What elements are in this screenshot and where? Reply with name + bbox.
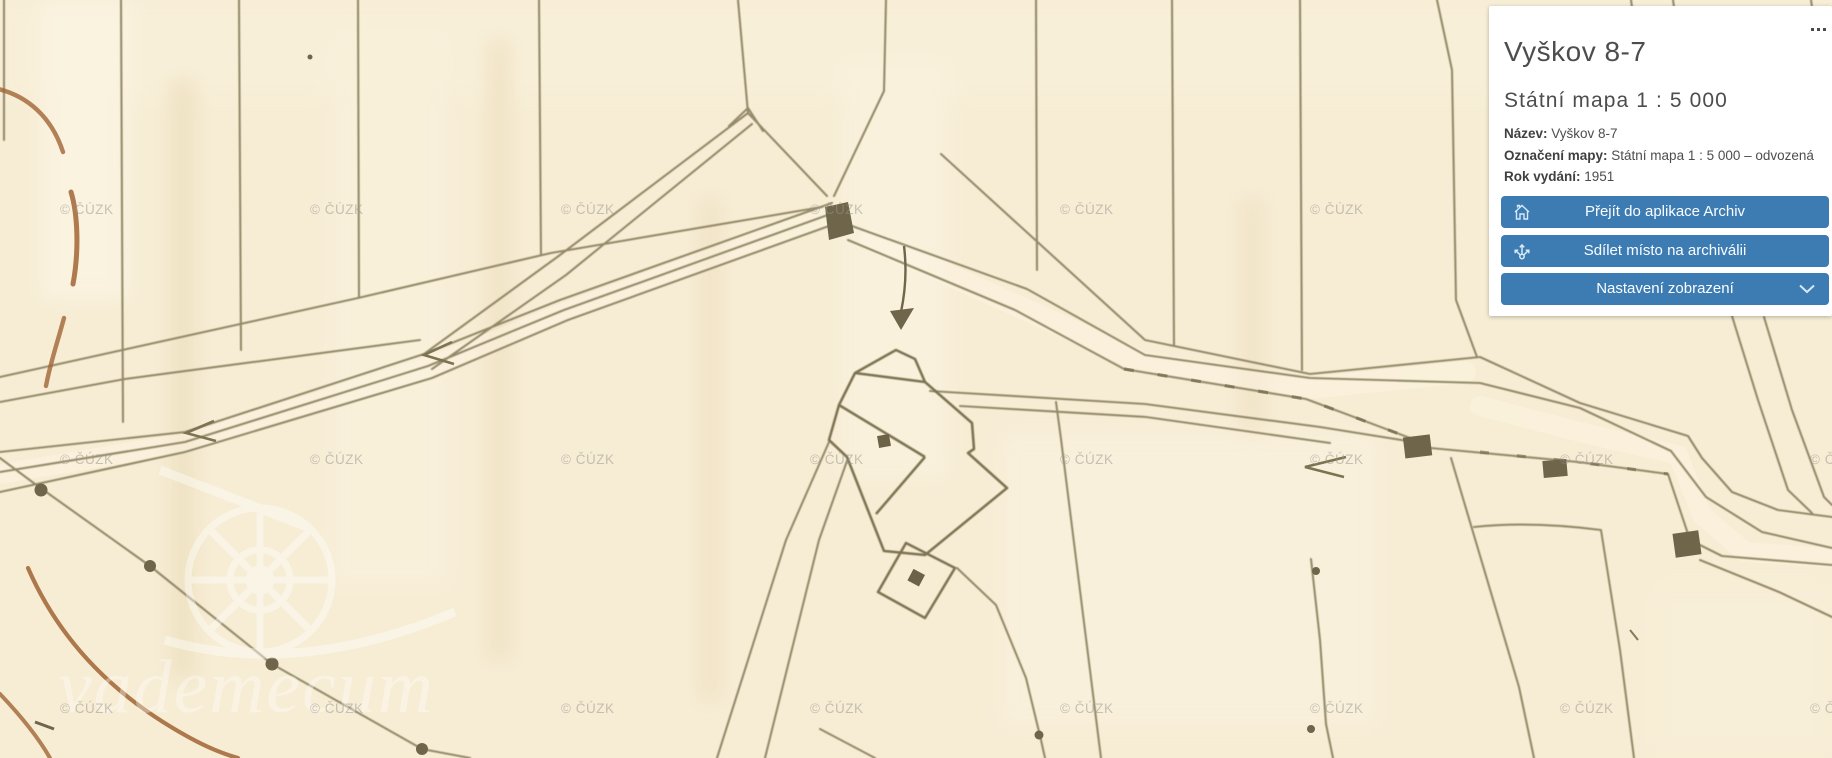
svg-text:© ČÚZK: © ČÚZK [1310, 202, 1363, 217]
svg-text:© ČÚZK: © ČÚZK [561, 701, 614, 716]
svg-text:© ČÚZK: © ČÚZK [1810, 701, 1832, 716]
svg-text:© ČÚZK: © ČÚZK [310, 701, 363, 716]
svg-text:© ČÚZK: © ČÚZK [1810, 452, 1832, 467]
svg-text:© ČÚZK: © ČÚZK [60, 202, 113, 217]
svg-text:© ČÚZK: © ČÚZK [60, 701, 113, 716]
svg-text:© ČÚZK: © ČÚZK [1060, 701, 1113, 716]
svg-text:© ČÚZK: © ČÚZK [310, 202, 363, 217]
svg-text:© ČÚZK: © ČÚZK [60, 452, 113, 467]
svg-text:© ČÚZK: © ČÚZK [810, 202, 863, 217]
svg-text:© ČÚZK: © ČÚZK [561, 452, 614, 467]
svg-text:© ČÚZK: © ČÚZK [1560, 701, 1613, 716]
svg-text:© ČÚZK: © ČÚZK [810, 452, 863, 467]
svg-text:© ČÚZK: © ČÚZK [1060, 452, 1113, 467]
svg-text:© ČÚZK: © ČÚZK [1310, 452, 1363, 467]
svg-text:vademecum: vademecum [58, 645, 435, 729]
svg-text:© ČÚZK: © ČÚZK [561, 202, 614, 217]
svg-text:© ČÚZK: © ČÚZK [810, 701, 863, 716]
svg-text:© ČÚZK: © ČÚZK [1060, 202, 1113, 217]
svg-text:© ČÚZK: © ČÚZK [1310, 701, 1363, 716]
svg-text:© ČÚZK: © ČÚZK [310, 452, 363, 467]
svg-text:© ČÚZK: © ČÚZK [1560, 452, 1613, 467]
